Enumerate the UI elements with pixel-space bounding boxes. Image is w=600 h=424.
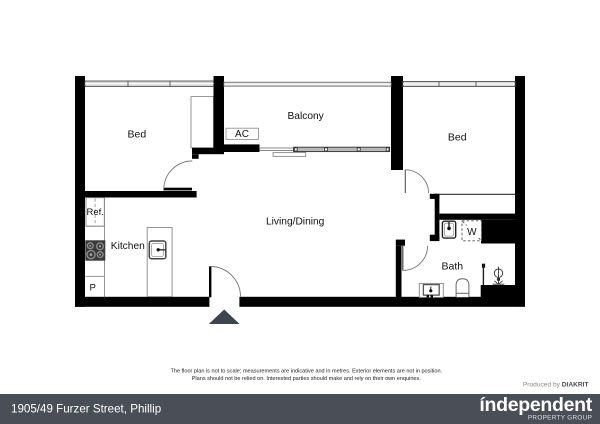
svg-text:Balcony: Balcony [288, 111, 325, 122]
svg-text:PROPERTY GROUP: PROPERTY GROUP [528, 415, 592, 422]
svg-text:Bed: Bed [448, 131, 467, 143]
svg-text:AC: AC [235, 129, 249, 140]
svg-text:Bed: Bed [128, 129, 147, 141]
svg-text:Bath: Bath [442, 260, 464, 272]
svg-text:Living/Dining: Living/Dining [266, 217, 325, 228]
svg-text:Kitchen: Kitchen [111, 241, 145, 252]
svg-text:1905/49 Furzer Street, Phillip: 1905/49 Furzer Street, Phillip [11, 402, 161, 415]
svg-text:The floor plan is not to scale: The floor plan is not to scale; measurem… [170, 369, 442, 375]
svg-text:Produced by DIAKRIT: Produced by DIAKRIT [523, 381, 589, 388]
svg-text:índependent: índependent [479, 394, 592, 416]
svg-text:W: W [467, 227, 477, 238]
svg-text:P: P [90, 283, 96, 294]
svg-text:Plans should not be relied on.: Plans should not be relied on. Intereste… [192, 376, 422, 382]
svg-text:Ref.: Ref. [87, 207, 104, 218]
